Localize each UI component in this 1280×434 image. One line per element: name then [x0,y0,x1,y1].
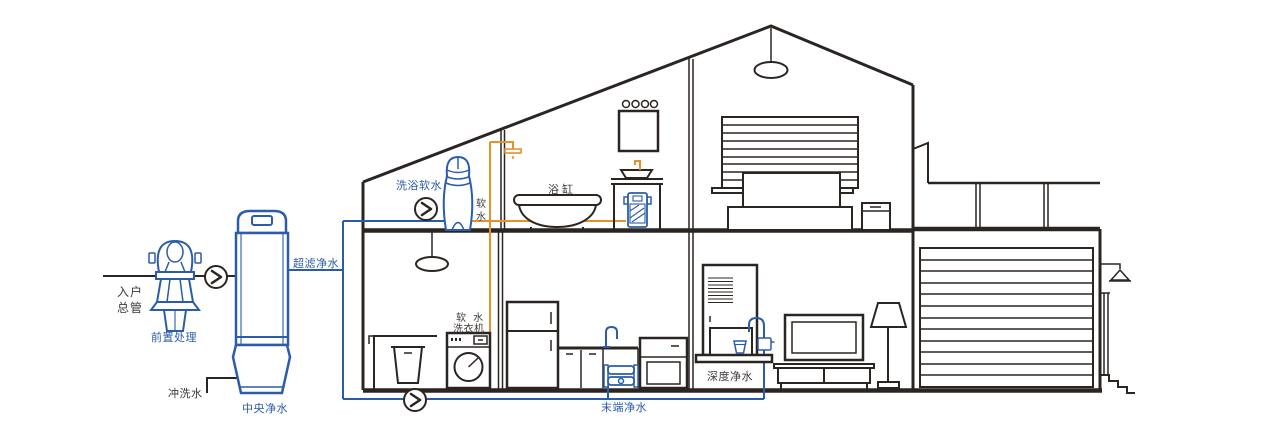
basin [621,170,652,178]
label-pre-treatment: 前置处理 [151,330,197,344]
deep-purifier-device [696,265,775,362]
flow-arrow-icon-upper [415,198,437,220]
laundry-room [369,333,490,390]
railing-posts [976,183,1048,229]
washing-machine [447,333,490,388]
wall-lamp-icon [1100,264,1131,281]
steps [1100,375,1135,393]
whole-house-water-system-diagram: 入户 总管 前置处理 冲洗水 中央净水 超滤净水 洗浴软水 软 水 浴缸 软 水… [0,0,1280,434]
pre-filter-device [149,241,201,331]
under-sink-purifier-device [624,193,651,227]
label-bath-softening: 洗浴软水 [396,178,442,192]
dispenser-valve [758,338,771,350]
roof-parapet [913,143,928,183]
label-flush-water: 冲洗水 [168,386,203,400]
bed [728,207,852,230]
flow-arrow-icon-inlet [205,266,227,288]
nightstand [862,203,890,230]
label-ultra-filtration: 超滤净水 [293,256,339,270]
label-soft-water-char1: 软 [476,197,487,210]
water-cup-icon [734,341,746,353]
lower-partition-wall [499,232,503,390]
shower-head-icon [505,149,521,159]
garage-door-slats [920,260,1093,375]
tv [785,315,863,360]
mirror-lights-icon [623,101,658,108]
label-inlet-line2: 总管 [117,300,143,315]
center-wall [689,57,693,390]
central-purifier-device [233,211,290,393]
terminal-purifier-device [604,365,638,387]
diagram-canvas: 入户 总管 前置处理 冲洗水 中央净水 超滤净水 洗浴软水 软 水 浴缸 软 水… [0,0,1280,434]
bath-softener-device [444,157,473,230]
mirror [619,111,658,151]
label-deep-purification: 深度净水 [707,369,753,383]
refrigerator [507,302,558,388]
flush-water-pipe [207,378,240,393]
label-washer-line2: 洗衣机 [453,322,485,335]
dispenser-shelf [696,355,772,362]
vanity-faucet-icon [635,161,640,170]
bathtub [514,195,601,231]
toilet [369,336,437,390]
label-central-purification: 中央净水 [242,401,288,415]
label-washer-line1: 软 水 [456,311,485,324]
oven [640,338,687,388]
kitchen [507,302,687,388]
ceiling-pendant-icon [416,232,448,271]
upper-bathroom [415,101,663,272]
bedroom [712,28,890,230]
tv-stand [774,364,874,389]
floor-lamp [871,303,906,388]
label-inlet-line1: 入户 [117,284,143,299]
label-soft-water-char2: 水 [476,211,487,223]
label-bathtub: 浴缸 [548,182,576,196]
headboard [743,173,840,207]
garage [913,143,1135,393]
flow-arrow-icon-bottom [404,389,426,411]
ceiling-pendant-icon [755,28,788,78]
upper-partition-wall [501,129,505,230]
sink-faucet-icon [603,327,617,347]
label-terminal-purification: 末端净水 [601,400,647,414]
